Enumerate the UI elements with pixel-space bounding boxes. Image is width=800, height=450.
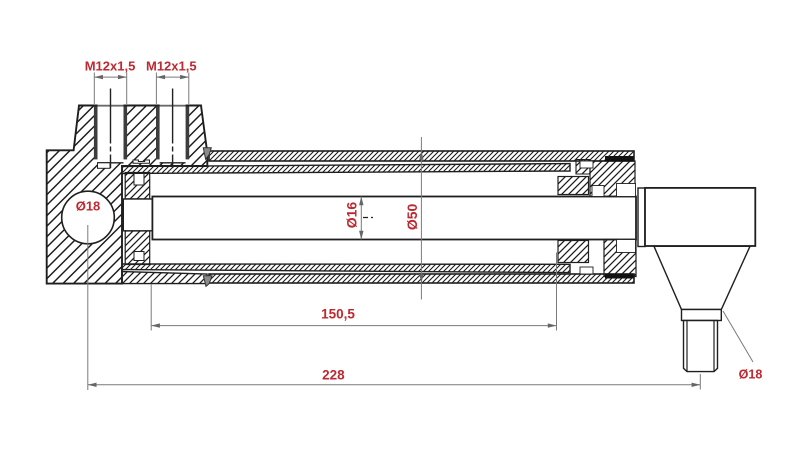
svg-text:Ø50: Ø50 [404, 203, 420, 230]
svg-text:M12x1,5: M12x1,5 [146, 59, 197, 74]
svg-text:Ø18: Ø18 [76, 199, 101, 214]
svg-text:Ø18: Ø18 [739, 368, 763, 382]
svg-text:M12x1,5: M12x1,5 [85, 59, 136, 74]
svg-text:Ø16: Ø16 [343, 202, 359, 229]
svg-text:150,5: 150,5 [321, 307, 355, 322]
svg-text:228: 228 [322, 368, 345, 383]
